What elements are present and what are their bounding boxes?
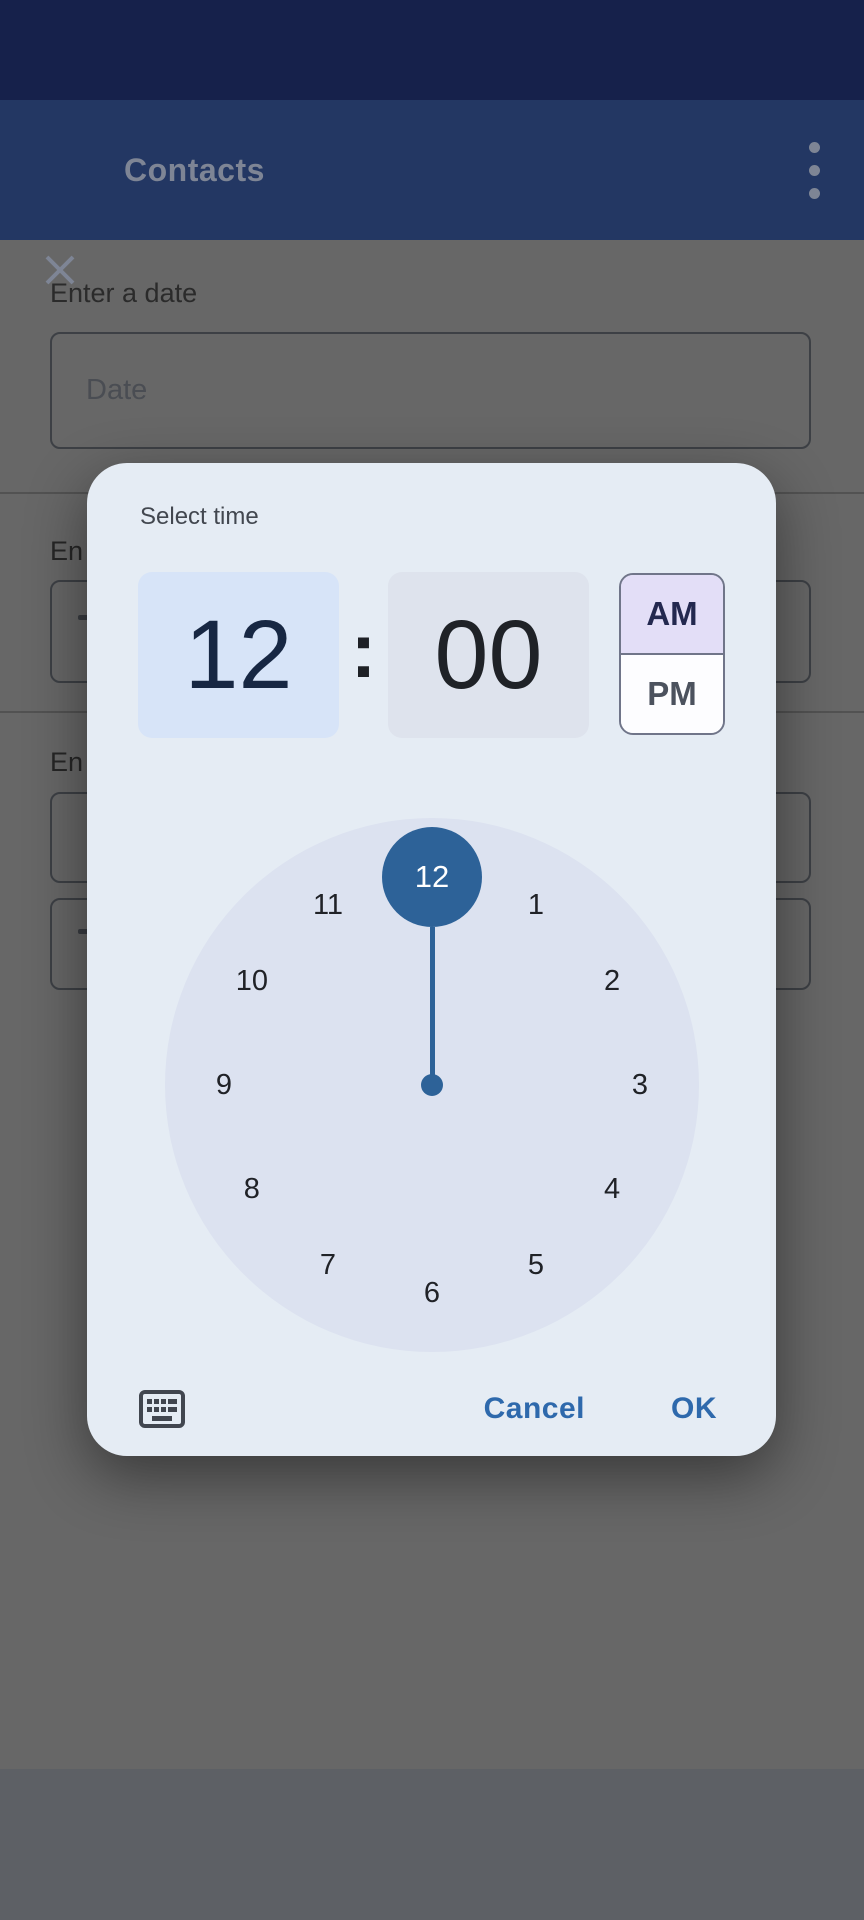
clock-hand: [430, 927, 435, 1085]
minute-field[interactable]: 00: [388, 572, 589, 738]
clock-number-2[interactable]: 2: [588, 957, 636, 1005]
pm-option[interactable]: PM: [621, 655, 723, 733]
status-bar: [0, 0, 864, 100]
date-input-placeholder: Date: [86, 334, 147, 447]
hour-field[interactable]: 12: [138, 572, 339, 738]
overflow-menu-button[interactable]: [809, 100, 820, 240]
clock-number-1[interactable]: 1: [512, 881, 560, 929]
clock-number-9[interactable]: 9: [200, 1061, 248, 1109]
keyboard-icon: [139, 1390, 185, 1430]
clock-number-3[interactable]: 3: [616, 1061, 664, 1109]
clock-number-6[interactable]: 6: [408, 1269, 456, 1317]
clock-selected-hour-handle[interactable]: 12: [382, 827, 482, 927]
date-input[interactable]: Date: [50, 332, 811, 449]
keyboard-input-mode-button[interactable]: [139, 1390, 185, 1430]
time-picker-dialog: Select time 12 : 00 AM PM 12 12345678910…: [87, 463, 776, 1456]
phone-screen: Contacts Enter a date Date En En 1: [0, 0, 864, 1920]
time-colon: :: [339, 567, 388, 733]
clock-number-4[interactable]: 4: [588, 1165, 636, 1213]
time-field-label-partial: En: [50, 536, 83, 567]
bottom-nav: 1: [0, 1769, 864, 1920]
cancel-button[interactable]: Cancel: [484, 1392, 585, 1426]
ampm-toggle: AM PM: [619, 573, 725, 735]
clock-center-dot: [421, 1074, 443, 1096]
date-field-label: Enter a date: [50, 278, 197, 309]
field-label-partial-2: En: [50, 747, 83, 778]
kebab-menu-icon: [809, 142, 820, 153]
clock-number-10[interactable]: 10: [228, 957, 276, 1005]
app-bar: Contacts: [0, 100, 864, 240]
ok-button[interactable]: OK: [671, 1392, 717, 1426]
am-option[interactable]: AM: [621, 575, 723, 655]
clock-number-7[interactable]: 7: [304, 1241, 352, 1289]
clock-number-8[interactable]: 8: [228, 1165, 276, 1213]
dialog-actions: Cancel OK: [484, 1392, 717, 1426]
page-title: Contacts: [124, 100, 265, 240]
clock-face[interactable]: 12 1234567891011: [165, 818, 699, 1352]
clock-number-11[interactable]: 11: [304, 881, 352, 929]
clock-number-5[interactable]: 5: [512, 1241, 560, 1289]
dialog-title: Select time: [140, 503, 259, 531]
